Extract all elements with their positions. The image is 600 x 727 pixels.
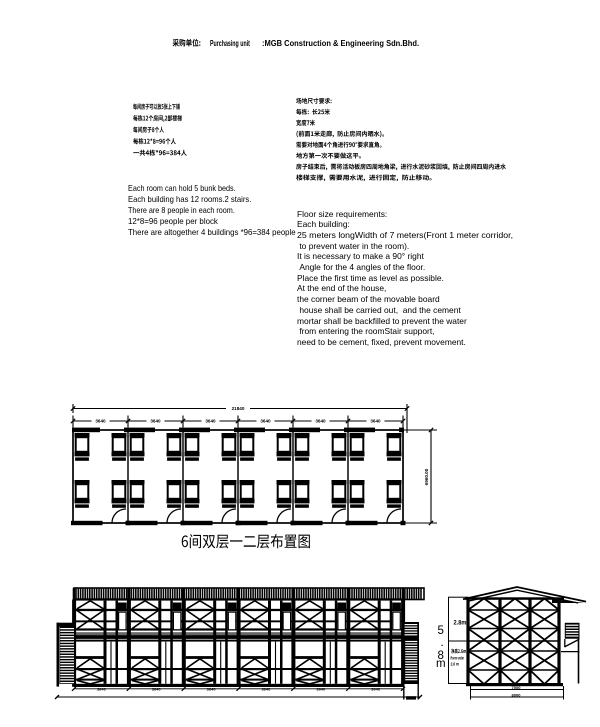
svg-text:2.6 m: 2.6 m	[451, 662, 460, 667]
svg-text:3640: 3640	[207, 686, 217, 691]
svg-text:3640: 3640	[152, 686, 162, 691]
svg-text:3640: 3640	[261, 686, 271, 691]
svg-text:3640: 3640	[97, 686, 107, 691]
svg-text:3640: 3640	[150, 419, 161, 424]
svg-text:3640: 3640	[205, 419, 216, 424]
svg-text:3640: 3640	[370, 419, 381, 424]
svg-text:3640: 3640	[95, 419, 106, 424]
svg-text:2.8m: 2.8m	[454, 620, 467, 627]
svg-text:7000: 7000	[512, 685, 522, 690]
svg-text:3640: 3640	[260, 419, 271, 424]
svg-text:3640: 3640	[371, 686, 381, 691]
svg-text:Room under: Room under	[451, 656, 465, 661]
svg-text:6960.00: 6960.00	[424, 468, 429, 485]
svg-text:8000: 8000	[512, 692, 522, 697]
svg-text:3640: 3640	[316, 686, 326, 691]
svg-text:3640: 3640	[315, 419, 326, 424]
svg-text:21840: 21840	[232, 406, 245, 411]
